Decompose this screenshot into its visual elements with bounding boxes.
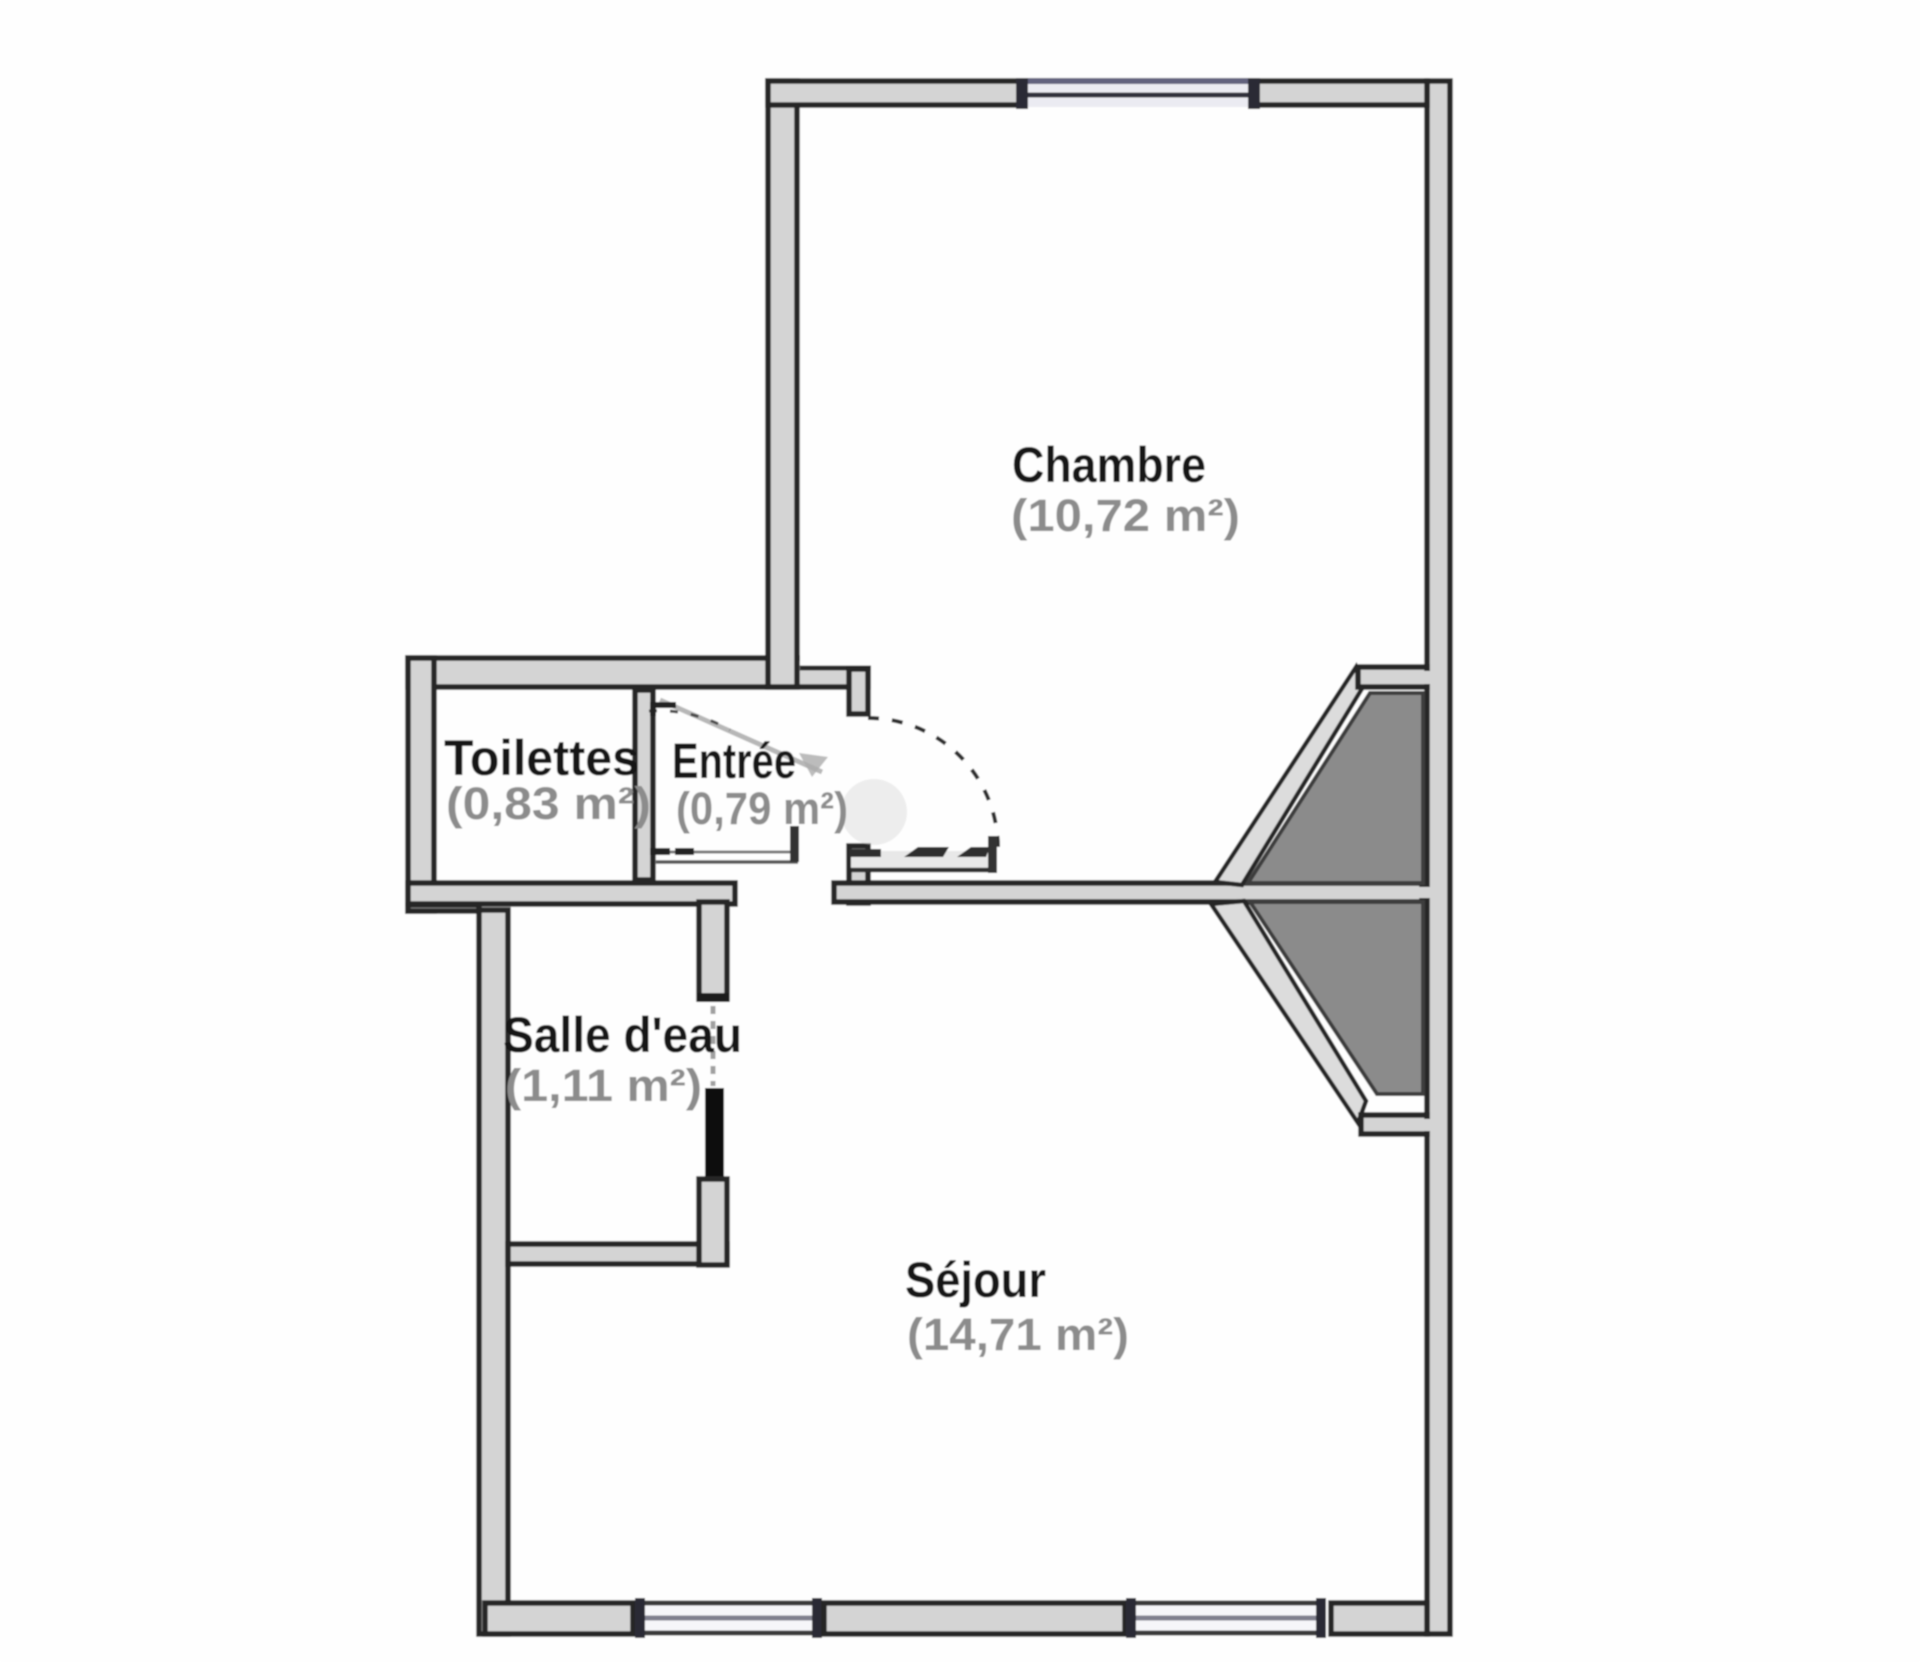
svg-text:Entrée: Entrée — [672, 733, 796, 789]
svg-text:Chambre: Chambre — [1012, 437, 1206, 493]
svg-text:(1,11 m²): (1,11 m²) — [505, 1060, 702, 1111]
svg-text:Salle d'eau: Salle d'eau — [503, 1007, 742, 1063]
svg-text:(10,72 m²): (10,72 m²) — [1011, 490, 1240, 541]
svg-text:(0,83 m²): (0,83 m²) — [446, 778, 651, 829]
svg-text:(0,79 m²): (0,79 m²) — [676, 783, 848, 834]
svg-text:Séjour: Séjour — [905, 1252, 1046, 1308]
svg-text:(14,71 m²): (14,71 m²) — [907, 1309, 1129, 1360]
